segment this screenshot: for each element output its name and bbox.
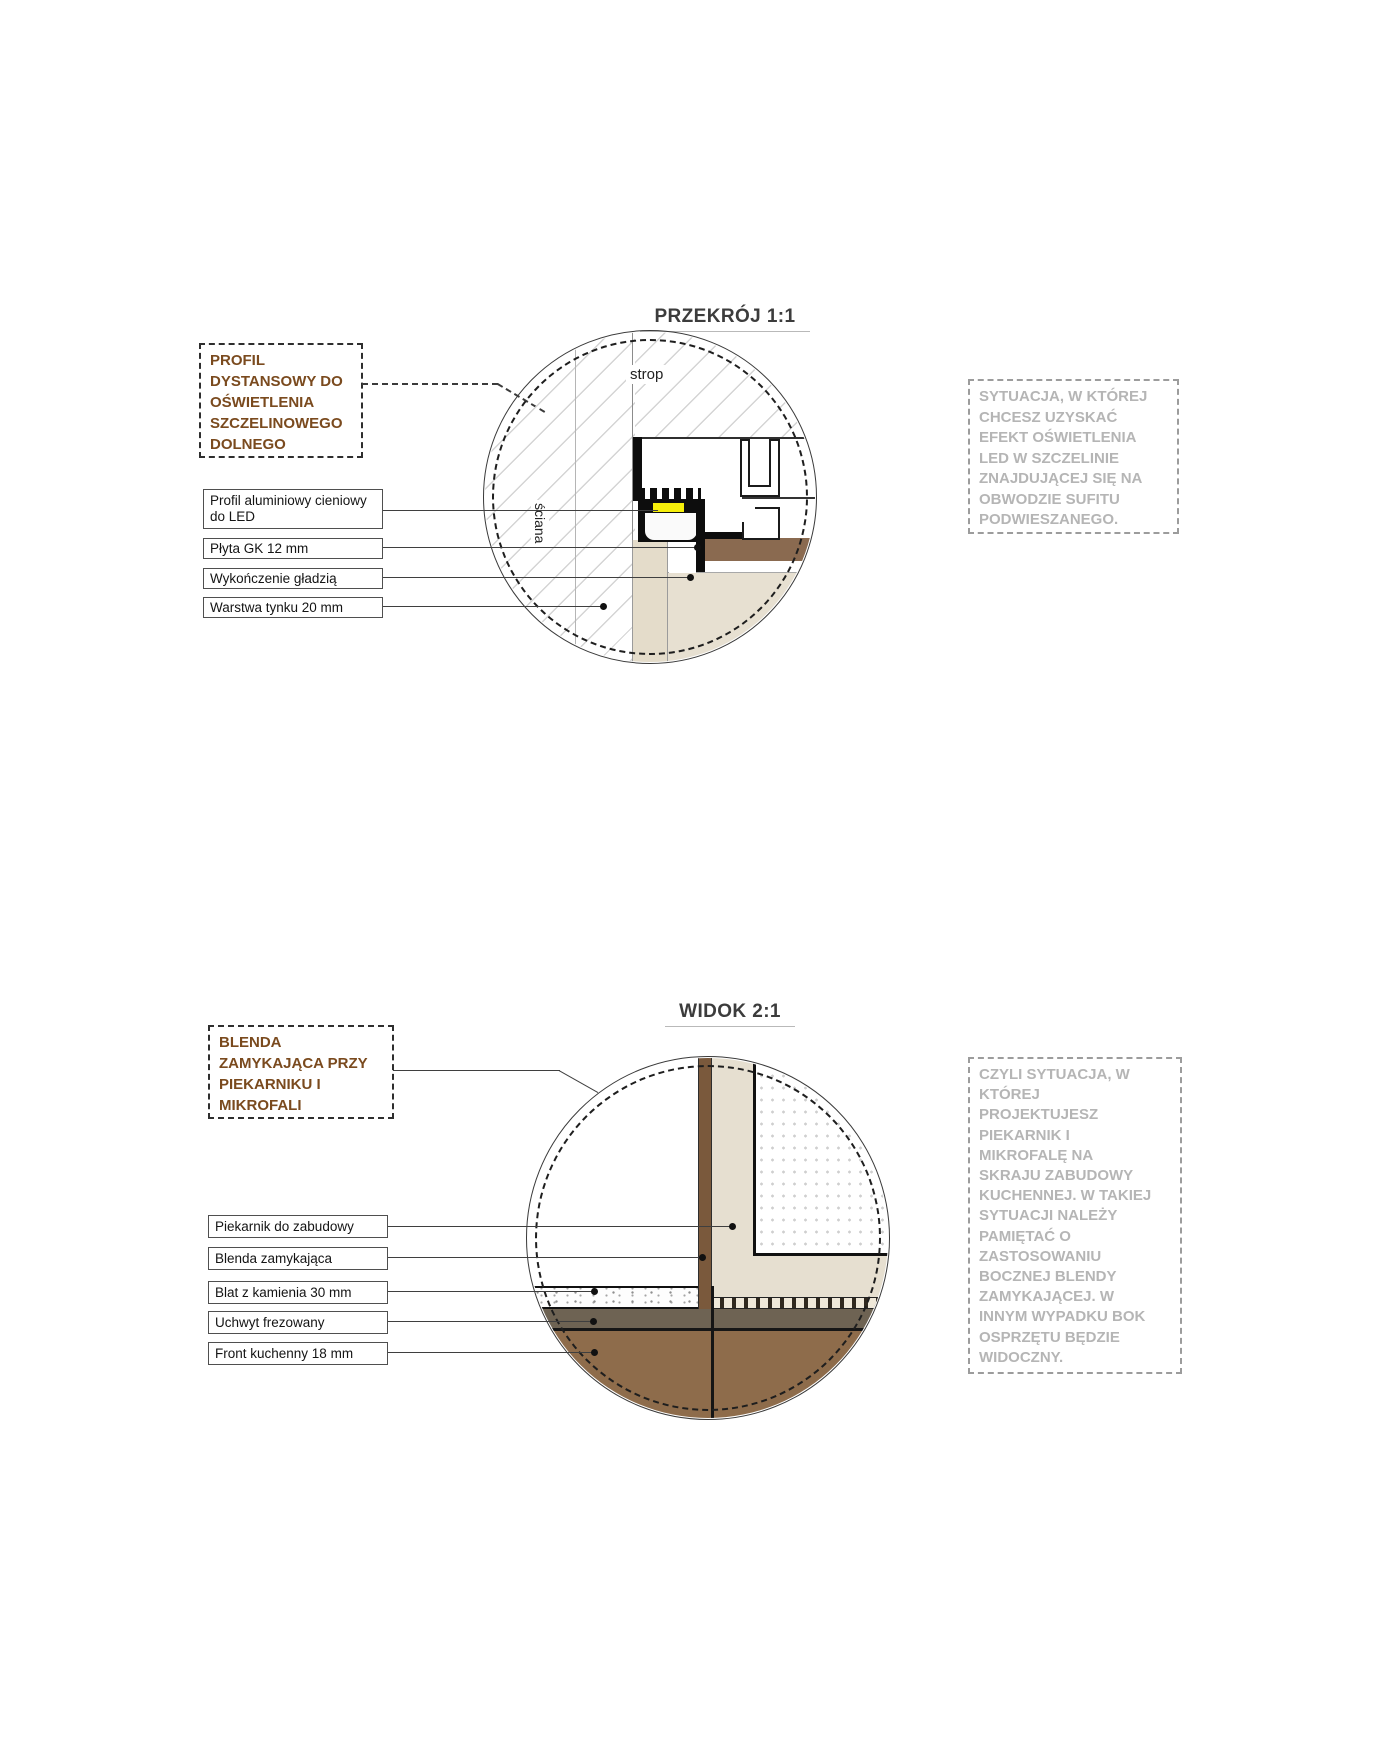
section1-callout-leader-horizontal — [362, 383, 498, 385]
label-profil-aluminiowy: Profil aluminiowy cieniowy do LED — [203, 489, 383, 529]
leader-blat — [388, 1291, 596, 1292]
label-plyta-gk: Płyta GK 12 mm — [203, 538, 383, 559]
label-uchwyt: Uchwyt frezowany — [208, 1311, 388, 1334]
section1-note-box: SYTUACJA, W KTÓREJ CHCESZ UZYSKAĆ EFEKT … — [968, 379, 1179, 534]
section2-title: WIDOK 2:1 — [665, 1001, 795, 1027]
label-front: Front kuchenny 18 mm — [208, 1342, 388, 1365]
label-blat: Blat z kamienia 30 mm — [208, 1281, 388, 1304]
section2-callout-box: BLENDA ZAMYKAJĄCA PRZY PIEKARNIKU I MIKR… — [208, 1025, 394, 1119]
leader-profil-aluminiowy — [383, 510, 658, 511]
detail1-outer-ring — [483, 330, 817, 664]
label-blenda: Blenda zamykająca — [208, 1247, 388, 1270]
leader-dot-plyta-gk — [694, 544, 701, 551]
section1-callout-box: PROFIL DYSTANSOWY DO OŚWIETLENIA SZCZELI… — [199, 343, 363, 458]
leader-dot-blat — [591, 1288, 598, 1295]
section2-note-box: CZYLI SYTUACJA, W KTÓREJ PROJEKTUJESZ PI… — [968, 1057, 1182, 1374]
leader-uchwyt — [388, 1321, 595, 1322]
section1-title: PRZEKRÓJ 1:1 — [640, 306, 810, 332]
label-piekarnik: Piekarnik do zabudowy — [208, 1215, 388, 1238]
detail-circle-przekroj: strop ściana — [483, 330, 817, 664]
leader-dot-tynk — [600, 603, 607, 610]
leader-tynk — [383, 606, 605, 607]
leader-dot-wykonczenie — [687, 574, 694, 581]
leader-dot-uchwyt — [590, 1318, 597, 1325]
leader-front — [388, 1352, 596, 1353]
leader-blenda — [388, 1257, 704, 1258]
leader-plyta-gk — [383, 547, 699, 548]
drawing-sheet: PRZEKRÓJ 1:1 PROFIL DYSTANSOWY DO OŚWIET… — [0, 0, 1375, 1737]
leader-dot-blenda — [699, 1254, 706, 1261]
label-wykonczenie-gladzia: Wykończenie gładzią — [203, 568, 383, 589]
leader-dot-front — [591, 1349, 598, 1356]
leader-wykonczenie — [383, 577, 692, 578]
label-warstwa-tynku: Warstwa tynku 20 mm — [203, 597, 383, 618]
detail-circle-widok — [526, 1056, 890, 1420]
detail2-outer-ring — [526, 1056, 890, 1420]
leader-dot-piekarnik — [729, 1223, 736, 1230]
leader-piekarnik — [388, 1226, 734, 1227]
